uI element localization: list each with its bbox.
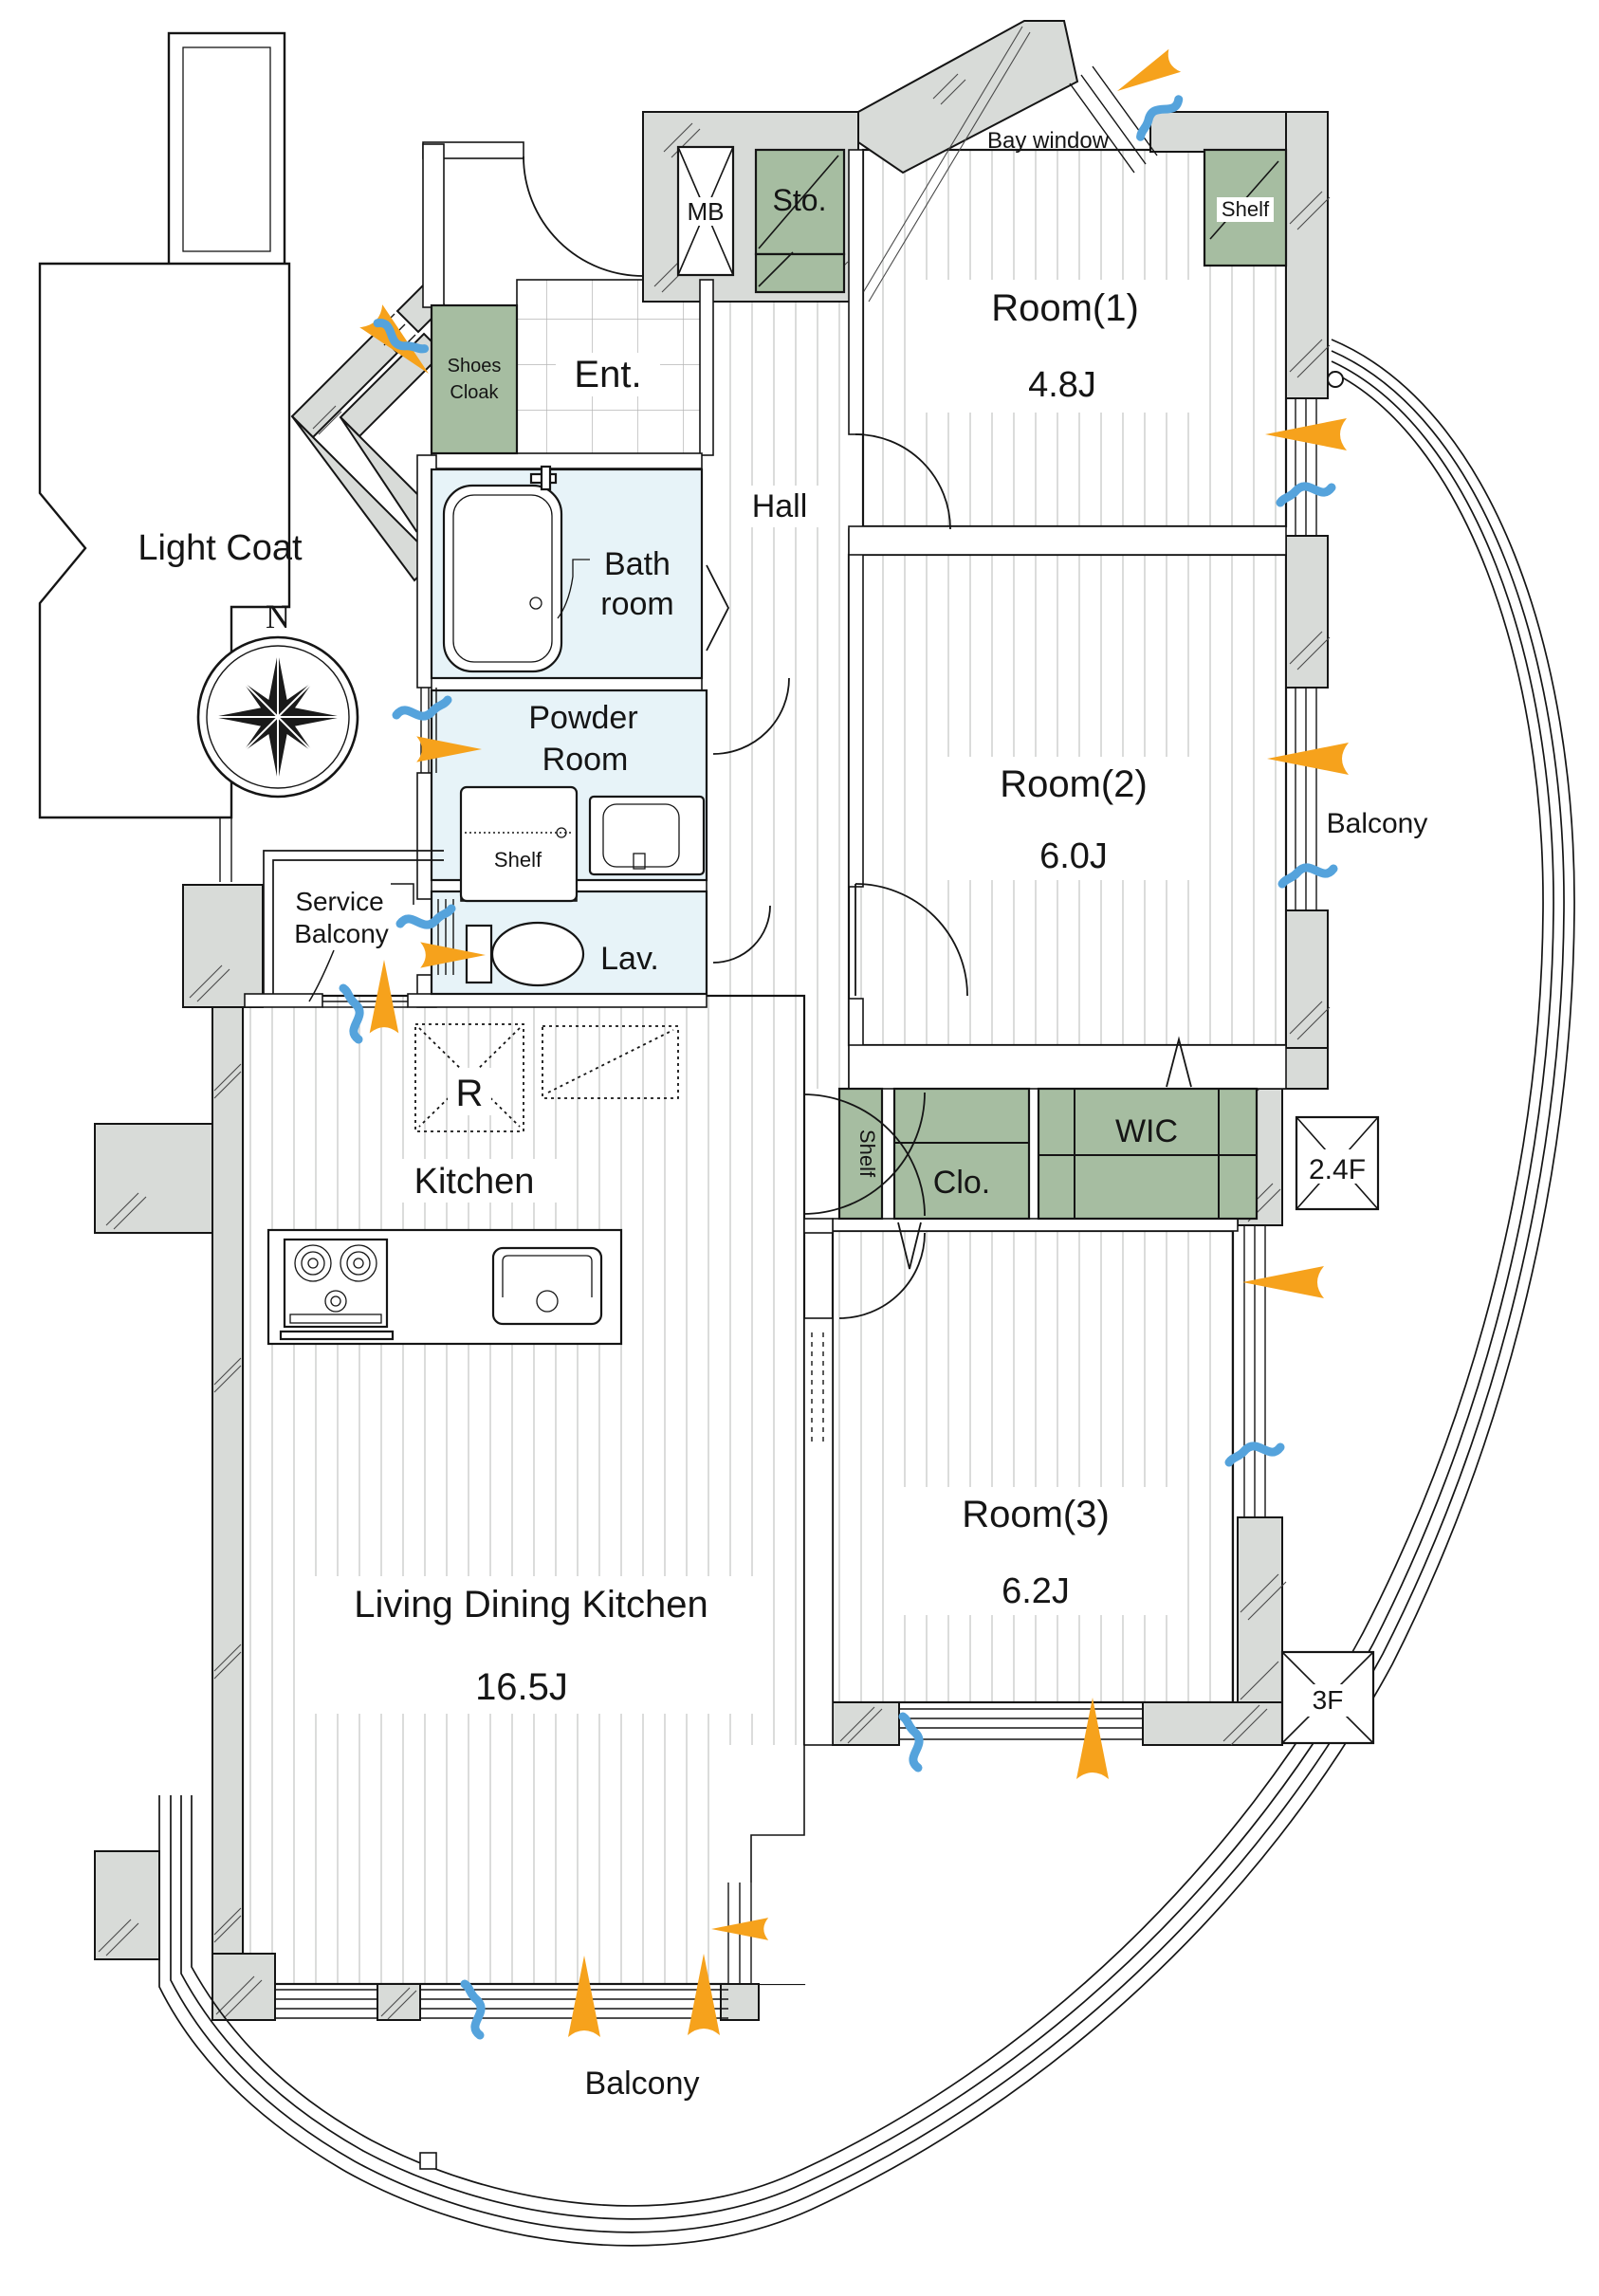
- storage-label: Sto.: [773, 183, 827, 217]
- balcony-bottom-label: Balcony: [585, 2066, 700, 2102]
- bathtub-icon: [444, 467, 561, 671]
- shoes-cloak-box: [432, 305, 517, 453]
- bath-label-1: Bath: [604, 546, 671, 582]
- powder-label-2: Room: [542, 742, 629, 778]
- light-court-label: Light Coat: [138, 528, 303, 568]
- floor-3-label: 3F: [1313, 1685, 1344, 1715]
- room1-name-label: Room(1): [991, 287, 1139, 329]
- bath-label-2: room: [600, 586, 673, 622]
- room3-size-label: 6.2J: [1002, 1571, 1070, 1611]
- service-balcony-label-1: Service: [295, 887, 383, 916]
- hall-shelf-label: Shelf: [855, 1130, 879, 1178]
- balcony-right-label: Balcony: [1327, 808, 1428, 839]
- kitchen-counter: [268, 1230, 621, 1344]
- ldk-size-label: 16.5J: [475, 1666, 568, 1708]
- floor-24-label: 2.4F: [1309, 1154, 1366, 1185]
- kitchen-sink-icon: [493, 1248, 601, 1324]
- room1-shelf-label: Shelf: [1222, 197, 1270, 221]
- meter-box-label: MB: [688, 197, 725, 226]
- kitchen-label: Kitchen: [414, 1162, 535, 1202]
- room3-name-label: Room(3): [962, 1494, 1110, 1535]
- shoes-cloak-label-1: Shoes: [448, 356, 502, 377]
- shoes-cloak-label-2: Cloak: [450, 382, 499, 403]
- powder-sink-icon: [590, 797, 704, 874]
- refrigerator-label: R: [456, 1073, 484, 1114]
- floor-plan-page: Light Coat N: [0, 0, 1599, 2291]
- room3-floor: [833, 1231, 1233, 1702]
- ldk-floor: [243, 996, 804, 1984]
- room1-size-label: 4.8J: [1028, 365, 1096, 405]
- powder-shelf-label: Shelf: [494, 848, 542, 872]
- bay-window-label: Bay window: [987, 128, 1110, 154]
- floor-plan: Light Coat N: [0, 0, 1599, 2291]
- service-balcony-label-2: Balcony: [294, 919, 389, 948]
- closet-label: Clo.: [933, 1165, 990, 1201]
- lavatory-label: Lav.: [600, 941, 659, 977]
- hall-floor: [713, 285, 849, 1089]
- room2-size-label: 6.0J: [1039, 836, 1108, 876]
- ldk-name-label: Living Dining Kitchen: [354, 1584, 708, 1626]
- hall-label: Hall: [752, 488, 808, 524]
- wic-box: [1038, 1089, 1257, 1219]
- entrance-label: Ent.: [574, 354, 641, 395]
- ldk-west-wall: [212, 996, 243, 1987]
- room2-name-label: Room(2): [1000, 763, 1148, 805]
- stove-icon: [285, 1240, 387, 1327]
- washer-pan-icon: [461, 787, 577, 901]
- wic-label: WIC: [1115, 1113, 1178, 1149]
- powder-label-1: Powder: [528, 700, 637, 736]
- compass-n-label: N: [266, 597, 290, 635]
- toilet-icon: [467, 923, 583, 985]
